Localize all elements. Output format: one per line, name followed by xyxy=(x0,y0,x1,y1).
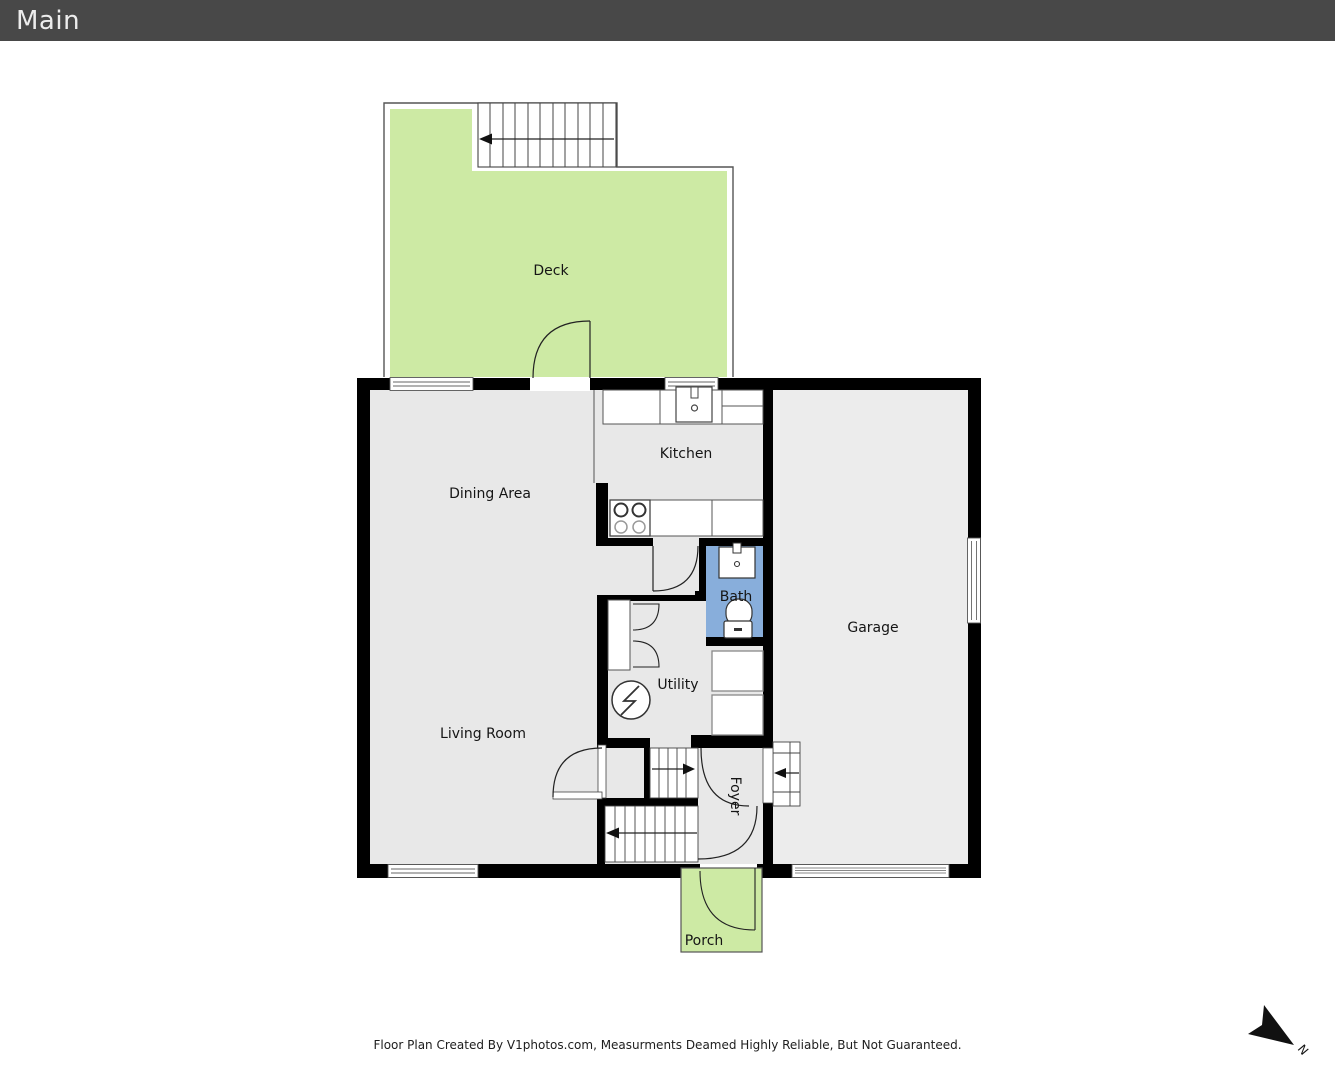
garage-door-leaf xyxy=(763,748,773,803)
water-heater xyxy=(612,681,650,719)
wall-segment xyxy=(763,803,773,864)
wall-segment xyxy=(699,546,706,591)
utility-closet-door-leaf xyxy=(608,600,630,670)
garage-label: Garage xyxy=(847,620,898,636)
wall-segment xyxy=(644,740,650,798)
wall-segment xyxy=(596,483,608,546)
disclaimer-text: Floor Plan Created By V1photos.com, Meas… xyxy=(0,1038,1335,1052)
washer xyxy=(712,651,763,691)
window-top-left xyxy=(390,378,473,391)
garage-door xyxy=(792,865,949,878)
floor-plan-canvas: Deck Kitchen Dining Area Bath Garage Uti… xyxy=(0,0,1335,1080)
understair-closet-door-leaf xyxy=(598,745,606,798)
dryer xyxy=(712,695,763,735)
living-label: Living Room xyxy=(440,726,526,742)
wall-segment xyxy=(691,735,773,748)
kitchen-sink-faucet xyxy=(691,387,698,398)
kitchen-label: Kitchen xyxy=(660,446,713,462)
foyer-label: Foyer xyxy=(727,777,743,816)
title-bar: Main xyxy=(0,0,1335,41)
deck-door-opening xyxy=(530,378,590,392)
wall-segment xyxy=(763,390,773,748)
dining-label: Dining Area xyxy=(449,486,531,502)
window-bottom-left xyxy=(388,865,478,878)
wall-segment xyxy=(597,797,605,864)
deck-area xyxy=(384,103,733,377)
page-title: Main xyxy=(0,6,80,36)
bath-label: Bath xyxy=(720,589,753,605)
porch-label: Porch xyxy=(685,933,724,949)
stairs-upper-flight xyxy=(650,748,698,798)
window-garage-right xyxy=(968,538,981,623)
wall-segment xyxy=(596,538,653,546)
deck-label: Deck xyxy=(533,263,569,279)
toilet-flush-handle xyxy=(734,628,742,631)
wall-segment xyxy=(603,798,698,806)
living-closet-door-leaf xyxy=(553,792,602,799)
utility-label: Utility xyxy=(657,677,698,693)
wall-segment xyxy=(597,595,608,748)
deck-stairs xyxy=(478,103,616,167)
floor-plan-page: Main xyxy=(0,0,1335,1080)
bath-sink-faucet xyxy=(733,543,741,553)
